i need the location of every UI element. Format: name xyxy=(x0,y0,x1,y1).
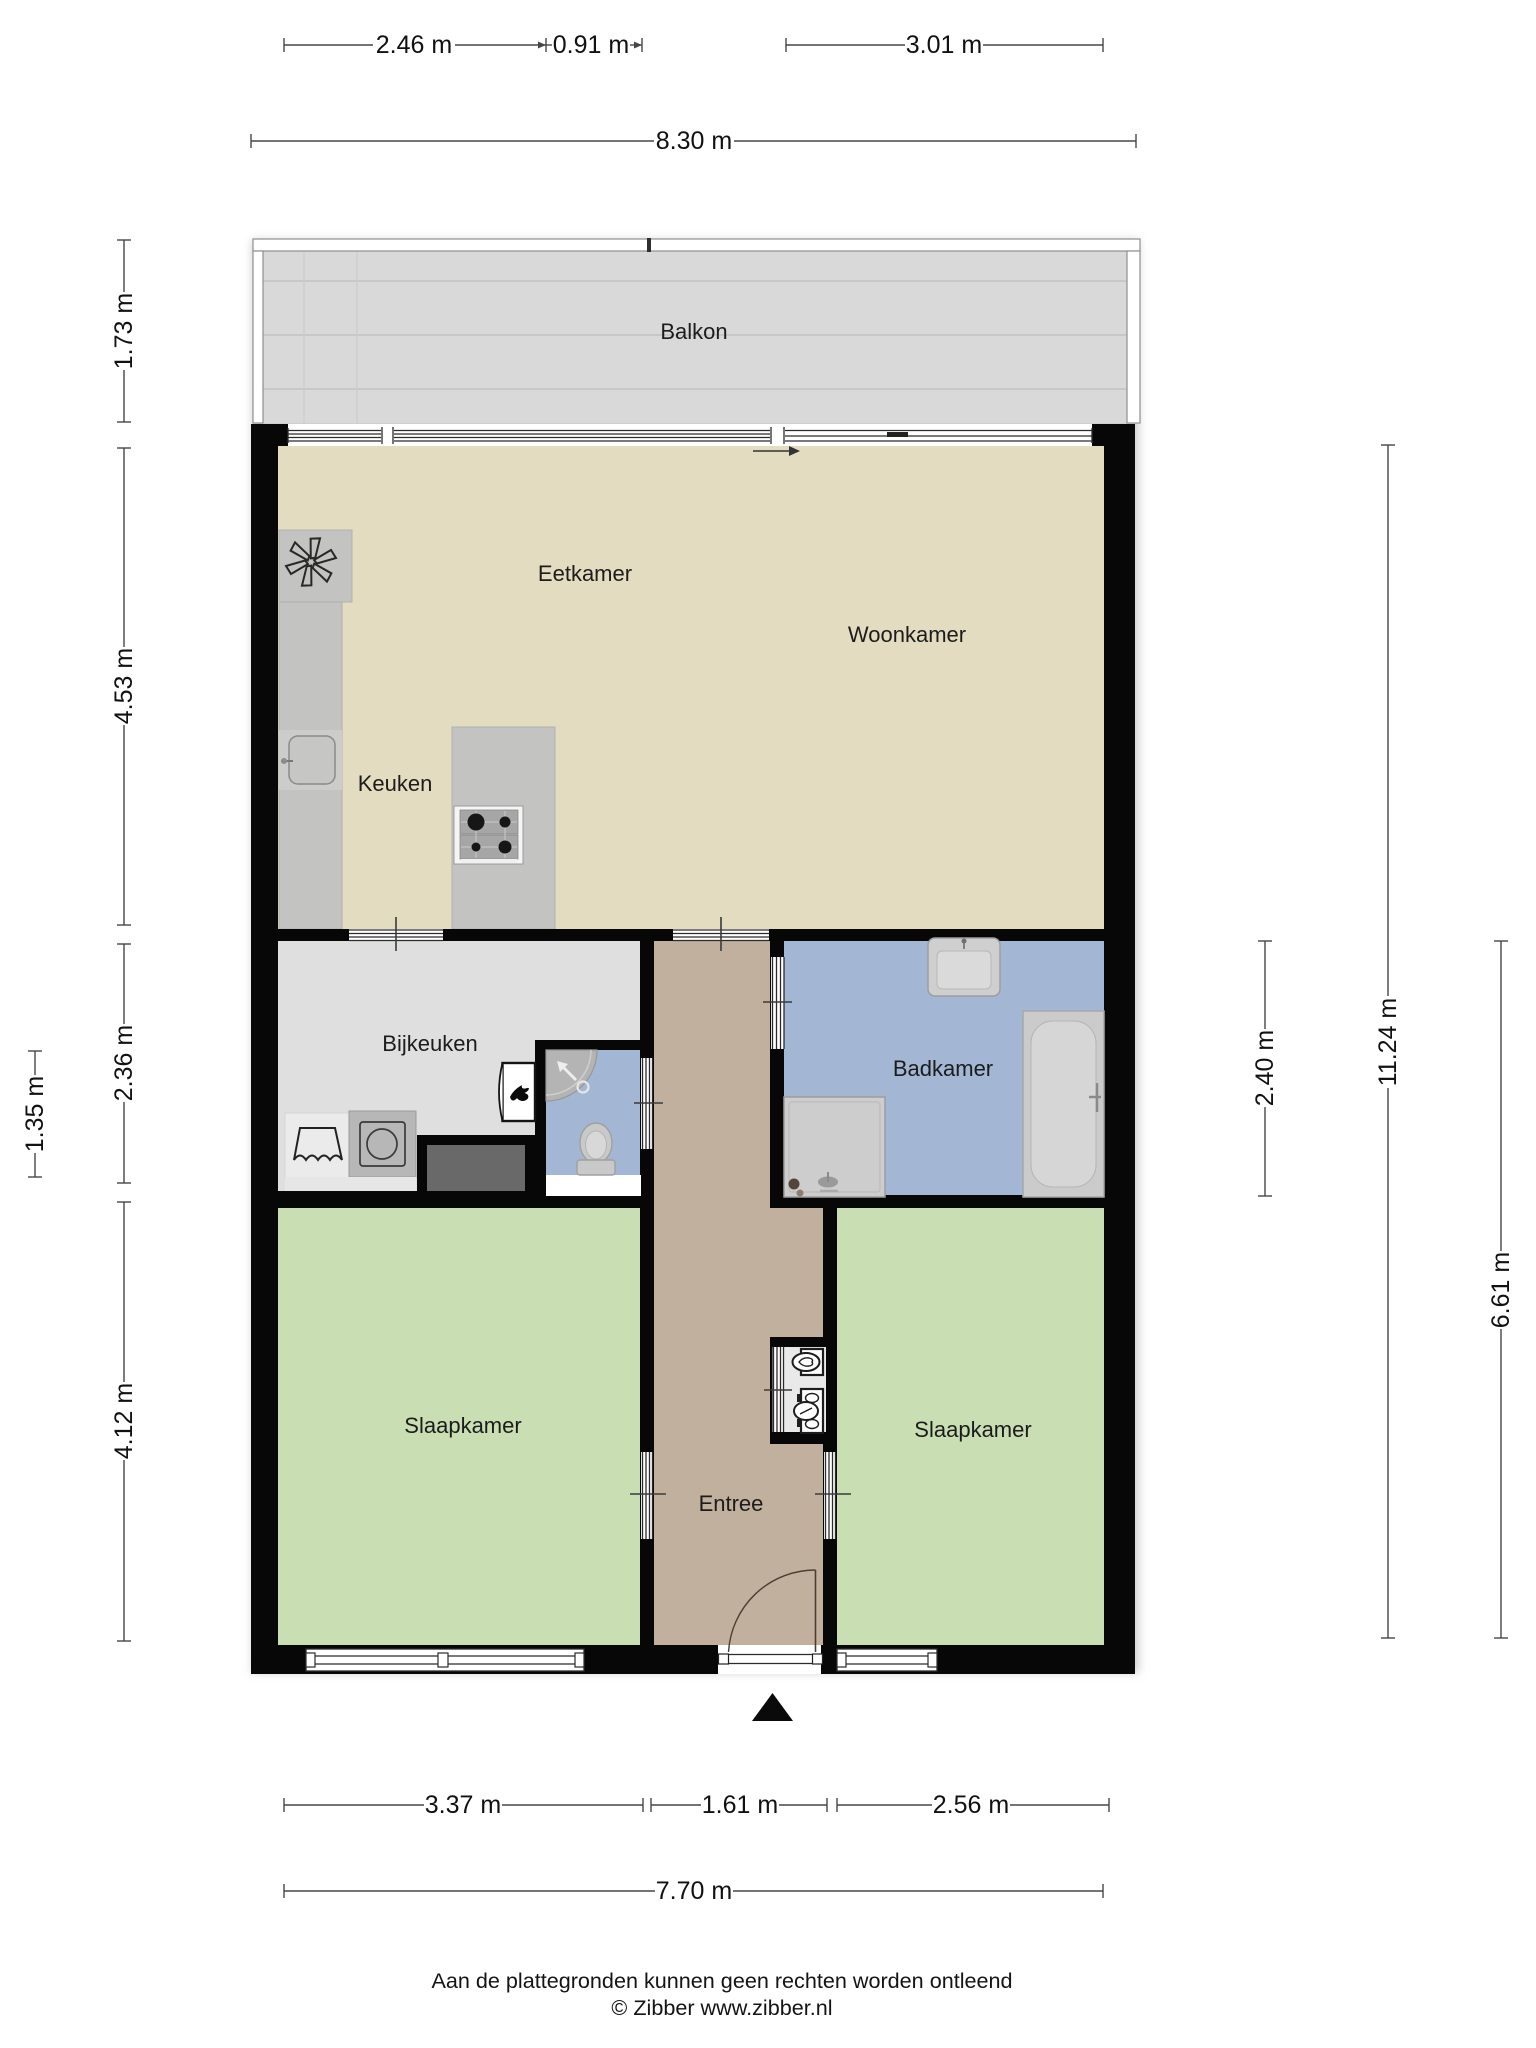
svg-text:2.46 m: 2.46 m xyxy=(376,31,452,59)
svg-text:2.36 m: 2.36 m xyxy=(110,1025,138,1101)
svg-text:2.40 m: 2.40 m xyxy=(1251,1030,1279,1106)
svg-text:2.56 m: 2.56 m xyxy=(933,1791,1009,1819)
svg-text:4.53 m: 4.53 m xyxy=(110,648,138,724)
svg-text:Entree: Entree xyxy=(699,1491,764,1516)
svg-text:Woonkamer: Woonkamer xyxy=(848,622,966,647)
svg-text:Badkamer: Badkamer xyxy=(893,1056,993,1081)
svg-text:7.70 m: 7.70 m xyxy=(656,1877,732,1905)
svg-text:8.30 m: 8.30 m xyxy=(656,127,732,155)
svg-text:Balkon: Balkon xyxy=(660,319,727,344)
svg-text:1.61 m: 1.61 m xyxy=(702,1791,778,1819)
svg-text:3.37 m: 3.37 m xyxy=(425,1791,501,1819)
svg-text:Bijkeuken: Bijkeuken xyxy=(382,1031,477,1056)
svg-text:1.73 m: 1.73 m xyxy=(110,293,138,369)
svg-text:4.12 m: 4.12 m xyxy=(110,1383,138,1459)
svg-text:© Zibber www.zibber.nl: © Zibber www.zibber.nl xyxy=(611,1995,832,2020)
svg-text:1.35 m: 1.35 m xyxy=(21,1076,49,1152)
svg-text:0.91 m: 0.91 m xyxy=(553,31,629,59)
svg-text:Aan de plattegronden kunnen ge: Aan de plattegronden kunnen geen rechten… xyxy=(431,1968,1012,1993)
svg-text:11.24 m: 11.24 m xyxy=(1374,998,1402,1086)
svg-text:Slaapkamer: Slaapkamer xyxy=(914,1417,1031,1442)
svg-text:Slaapkamer: Slaapkamer xyxy=(404,1413,521,1438)
svg-text:Keuken: Keuken xyxy=(358,771,433,796)
svg-text:Eetkamer: Eetkamer xyxy=(538,561,632,586)
svg-text:6.61 m: 6.61 m xyxy=(1487,1252,1515,1328)
svg-text:3.01 m: 3.01 m xyxy=(906,31,982,59)
